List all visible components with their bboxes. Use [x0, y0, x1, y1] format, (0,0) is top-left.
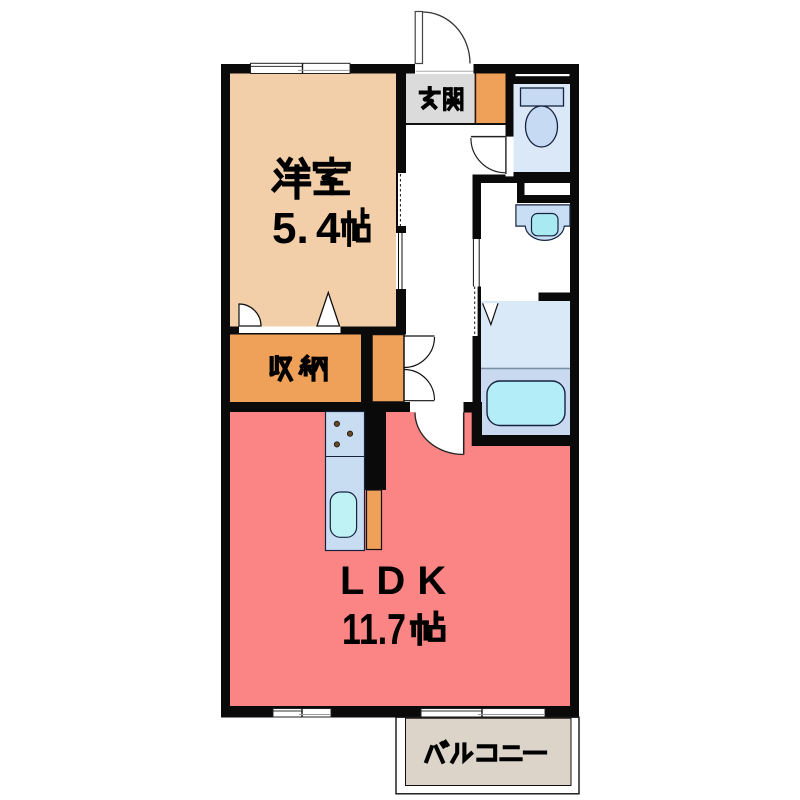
svg-text:LDK: LDK: [340, 559, 458, 603]
svg-text:5.: 5.: [272, 204, 309, 253]
svg-text:4: 4: [316, 204, 341, 253]
svg-text:11.7: 11.7: [342, 605, 406, 654]
